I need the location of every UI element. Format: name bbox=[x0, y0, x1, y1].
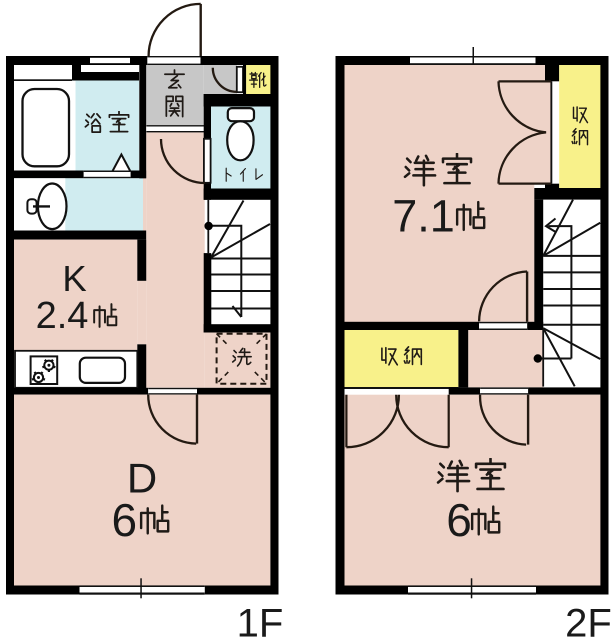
svg-text:K: K bbox=[62, 258, 86, 299]
svg-text:1F: 1F bbox=[237, 602, 284, 640]
svg-text:2F: 2F bbox=[565, 602, 612, 640]
svg-text:6: 6 bbox=[446, 494, 472, 546]
svg-text:7.1: 7.1 bbox=[392, 191, 455, 242]
svg-text:2.4: 2.4 bbox=[36, 295, 89, 337]
svg-text:6: 6 bbox=[112, 494, 138, 546]
